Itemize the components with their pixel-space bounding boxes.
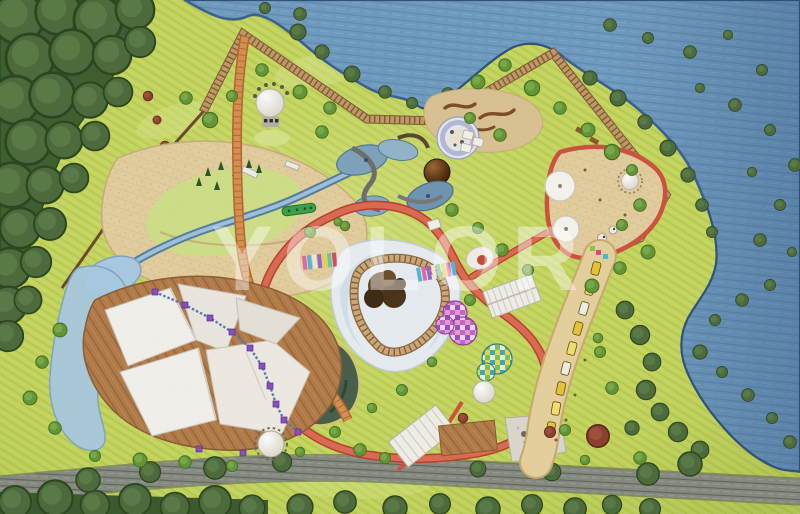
watermark: YOLOR (211, 208, 588, 310)
masterplan-illustration: YOLOR (0, 0, 800, 514)
park-plan-svg: YOLOR (0, 0, 800, 514)
